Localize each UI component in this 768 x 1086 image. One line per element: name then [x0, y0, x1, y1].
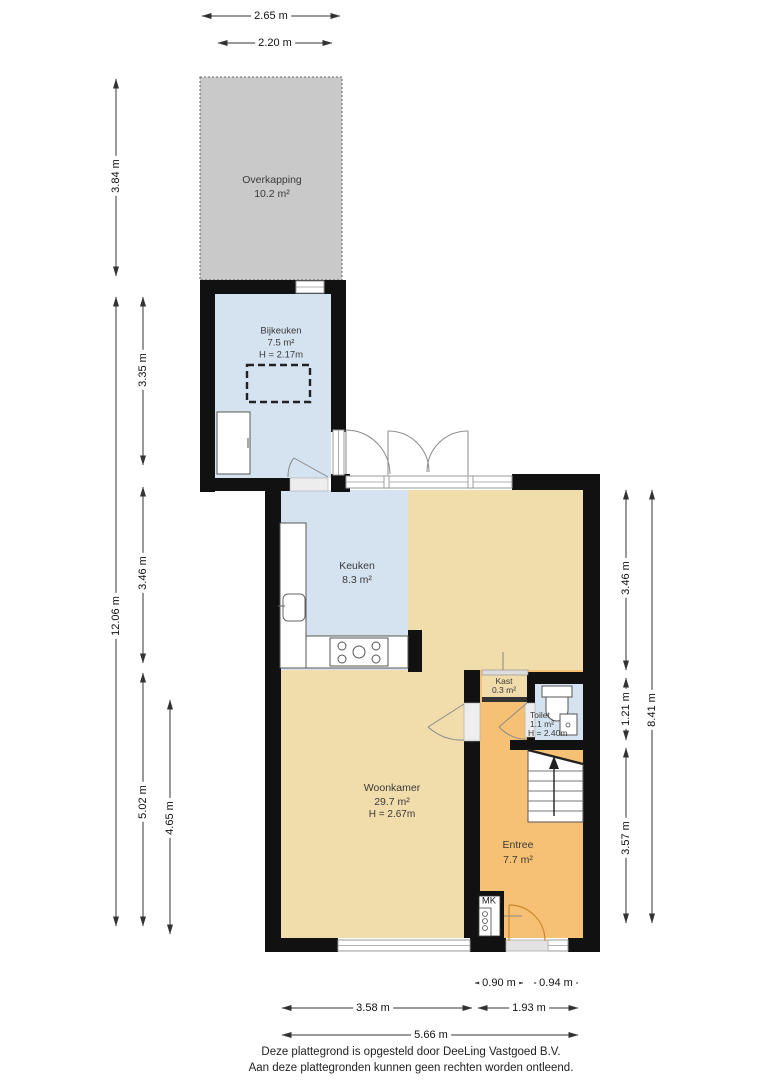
meter-panel	[479, 908, 491, 936]
garden-door-arc	[346, 430, 390, 474]
dim-overkapping-width-inner: 2.20 m	[255, 37, 295, 49]
woonkamer-floor-lower	[280, 670, 464, 938]
bijkeuken-height: H = 2.17m	[259, 350, 303, 360]
french-door-right-arc	[427, 431, 468, 472]
kast-door	[482, 670, 528, 675]
dim-overkapping-width-outer: 2.65 m	[251, 10, 291, 22]
bijkeuken-area: 7.5 m²	[268, 338, 295, 348]
dim-bottom-total-width: 5.66 m	[411, 1029, 451, 1041]
dim-left-woonkamer-inner: 4.65 m	[164, 798, 176, 838]
staircase	[528, 750, 583, 822]
floor-plan: Overkapping 10.2 m² Bijkeuken 7.5 m² H =…	[0, 0, 768, 1086]
woonkamer-name: Woonkamer	[364, 783, 420, 794]
entree-area: 7.7 m²	[503, 855, 533, 866]
front-door-threshold	[506, 940, 548, 951]
kast-area: 0.3 m²	[492, 686, 516, 695]
dim-right-toilet-zone: 1.21 m	[620, 689, 632, 729]
dim-left-house-total-depth: 12.06 m	[110, 593, 122, 639]
meterkast-label: MK	[482, 896, 496, 906]
keuken-area: 8.3 m²	[342, 575, 372, 586]
overkapping-area: 10.2 m²	[254, 189, 290, 200]
woonkamer-height: H = 2.67m	[369, 810, 415, 820]
dim-left-bijkeuken-depth: 3.35 m	[137, 350, 149, 390]
footer-disclaimer: Aan deze plattegronden kunnen geen recht…	[249, 1062, 574, 1074]
dim-right-entree-zone: 3.57 m	[620, 818, 632, 858]
footer-credit: Deze plattegrond is opgesteld door DeeLi…	[261, 1046, 560, 1058]
bijkeuken-cabinet	[217, 412, 250, 474]
keuken-name: Keuken	[339, 561, 375, 572]
dim-bottom-window: 0.94 m	[536, 977, 576, 989]
dim-bottom-woonkamer: 3.58 m	[353, 1002, 393, 1014]
dim-left-woonkamer-depth: 5.02 m	[137, 782, 149, 822]
toilet-height: H = 2.40m	[528, 729, 567, 738]
kitchen-sink	[283, 594, 305, 621]
french-door-left-arc	[388, 431, 429, 472]
dim-right-upper: 3.46 m	[620, 558, 632, 598]
dim-bottom-door: 0.90 m	[479, 977, 519, 989]
bijkeuken-name: Bijkeuken	[260, 326, 301, 336]
toilet-cistern	[542, 686, 572, 697]
overkapping-name: Overkapping	[242, 175, 302, 186]
dim-left-keuken-depth: 3.46 m	[137, 553, 149, 593]
woonkamer-area: 29.7 m²	[374, 797, 410, 808]
dim-bottom-entree: 1.93 m	[509, 1002, 549, 1014]
entree-name: Entree	[503, 840, 534, 851]
dim-left-overkapping-depth: 3.84 m	[110, 156, 122, 196]
dim-right-total: 8.41 m	[646, 690, 658, 730]
